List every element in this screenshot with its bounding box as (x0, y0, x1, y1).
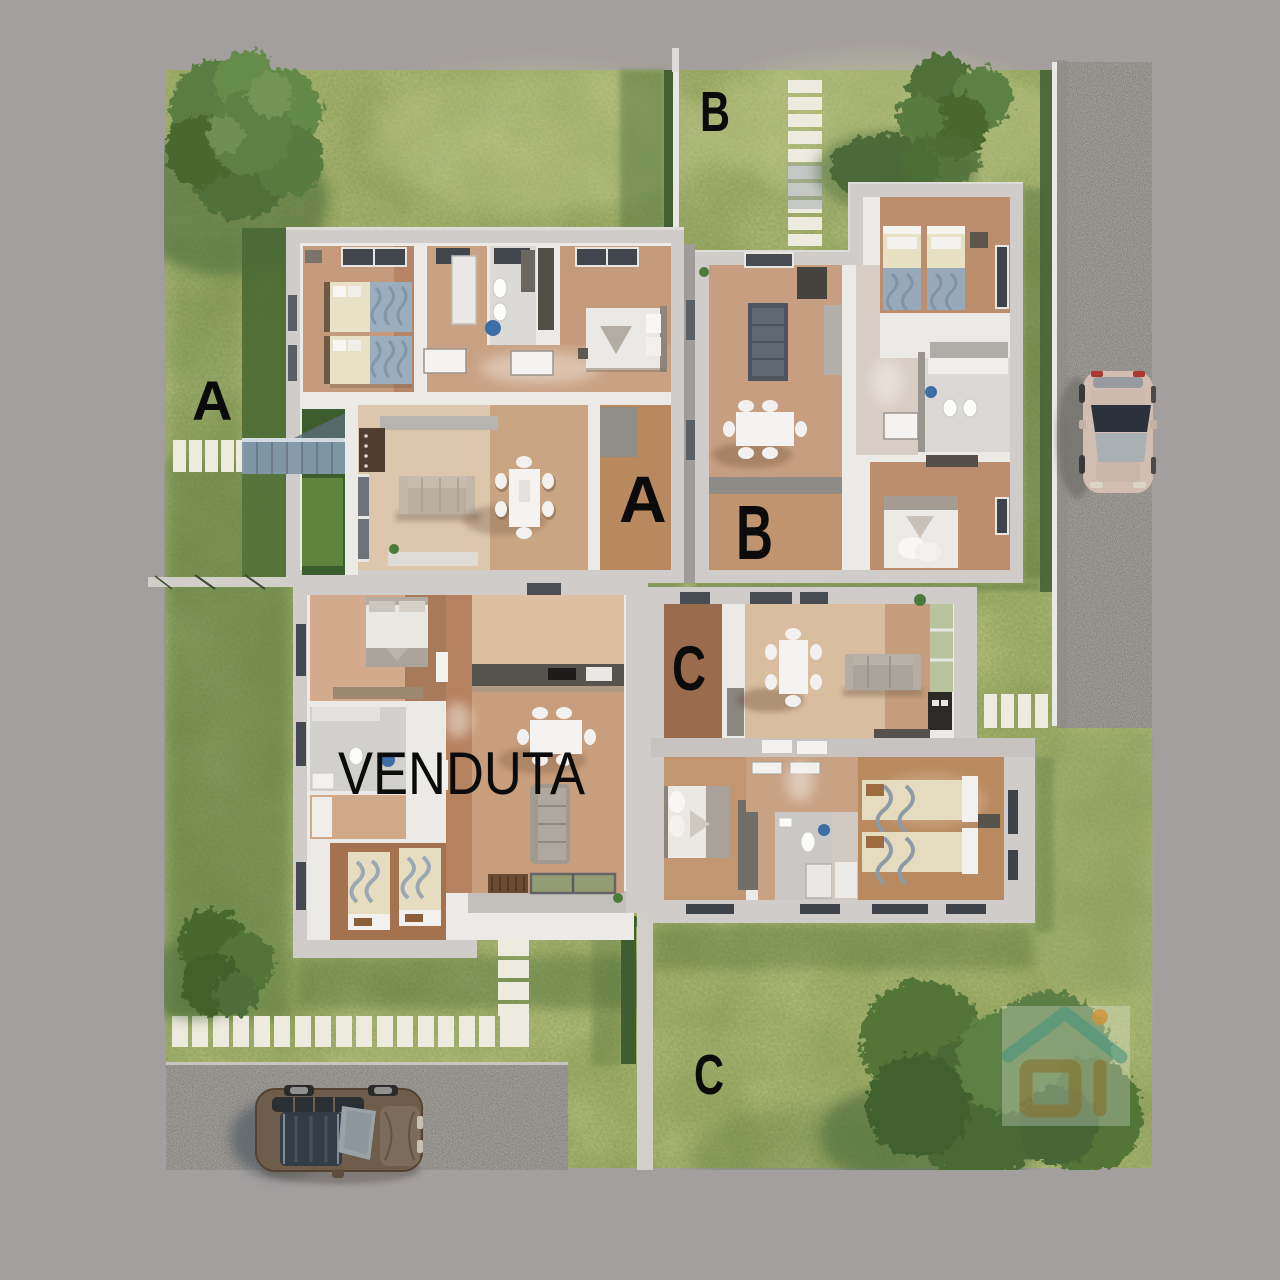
svg-text:VENDUTA: VENDUTA (338, 740, 585, 807)
svg-text:B: B (700, 80, 730, 144)
svg-text:A: A (619, 462, 667, 536)
svg-text:A: A (192, 369, 232, 432)
svg-text:C: C (672, 634, 706, 704)
svg-text:B: B (736, 490, 773, 576)
svg-text:C: C (694, 1043, 724, 1107)
